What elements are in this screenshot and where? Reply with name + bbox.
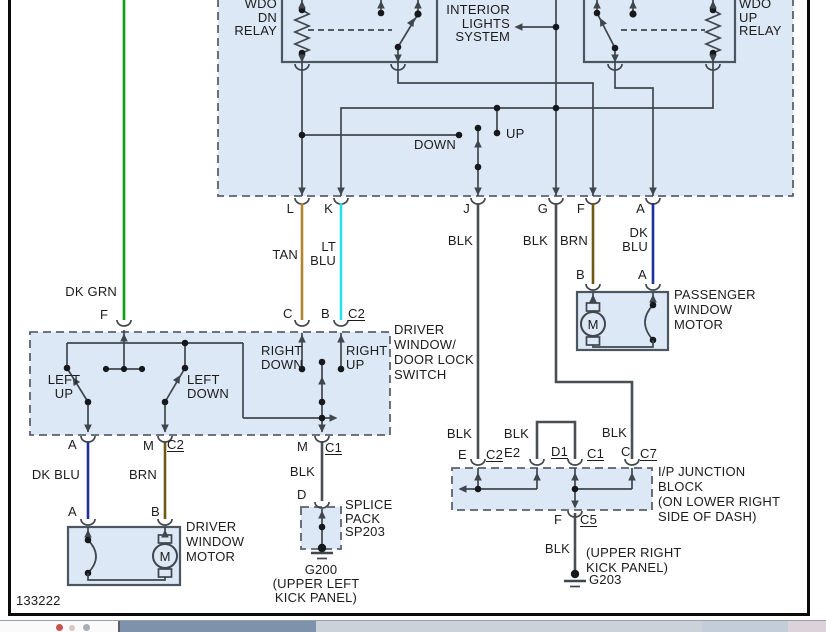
wire-blk-switch-label: BLK — [283, 465, 315, 479]
jb-conn-c7-label: C7 — [640, 447, 657, 461]
taskbar-tab-segment[interactable] — [0, 621, 118, 632]
figure-number: 133222 — [16, 594, 61, 608]
jb-blk-c-label: BLK — [595, 426, 627, 440]
pin-j-label: J — [456, 202, 470, 216]
jb-conn-c2-label: C2 — [486, 448, 503, 462]
taskbar-icon-pale[interactable] — [69, 625, 75, 631]
left-up-label: LEFT UP — [42, 373, 86, 400]
pin-g-label: G — [534, 202, 548, 216]
passenger-pin-b-label: B — [576, 268, 585, 282]
passenger-motor-letter: M — [588, 317, 599, 332]
switch-conn-c1-label: C1 — [325, 441, 342, 455]
wire-blk-j-label: BLK — [441, 234, 473, 248]
switch-pin-c-label: C — [283, 307, 293, 321]
right-up-label: RIGHT UP — [346, 344, 387, 371]
g200-label: G200 — [291, 563, 351, 577]
wdo-up-relay-label: WDO UP RELAY — [739, 0, 782, 38]
driver-motor-letter: M — [160, 549, 171, 564]
jb-blk-e2-label: BLK — [497, 427, 529, 441]
taskbar-strip — [0, 620, 826, 632]
driver-motor-pin-a-label: A — [68, 505, 77, 519]
up-bus-label: UP — [506, 127, 524, 141]
jb-conn-c5-label: C5 — [580, 513, 597, 527]
jb-conn-d1-label: D1 — [551, 445, 568, 459]
pin-k-label: K — [319, 202, 333, 216]
passenger-pin-a-label: A — [638, 268, 647, 282]
g200-location-label: (UPPER LEFT KICK PANEL) — [266, 577, 366, 604]
right-down-label: RIGHT DOWN — [261, 344, 303, 371]
g203-location-label: (UPPER RIGHT KICK PANEL) — [586, 545, 682, 575]
taskbar-segment-gray2[interactable] — [702, 621, 788, 632]
taskbar-segment-blue[interactable] — [120, 621, 316, 632]
taskbar-icon-gray[interactable] — [83, 624, 90, 631]
wire-dkblu-label: DK BLU — [612, 226, 648, 253]
taskbar-segment-pink[interactable] — [788, 621, 826, 632]
g203-label: G203 — [589, 573, 622, 587]
splice-pin-d-label: D — [297, 488, 307, 502]
jb-conn-c1-label: C1 — [587, 447, 604, 461]
jb-pin-f-label: F — [554, 513, 562, 527]
left-down-label: LEFT DOWN — [187, 373, 229, 400]
ground-g203-symbol — [564, 570, 586, 587]
driver-motor-title: DRIVER WINDOW MOTOR — [186, 519, 244, 564]
wire-brn-label: BRN — [556, 234, 588, 248]
driver-switch-title: DRIVER WINDOW/ DOOR LOCK SWITCH — [394, 322, 474, 382]
jb-pin-c-label: C — [621, 445, 631, 459]
jb-blk-e-label: BLK — [440, 427, 472, 441]
wiring-diagram-page: M M WDO DN RELAY INTERIOR LIGHTS SYSTEM … — [0, 0, 826, 632]
wire-brn-motor-label: BRN — [125, 468, 157, 482]
wire-dkblu-motor-label: DK BLU — [20, 468, 80, 482]
pin-a-label: A — [631, 202, 645, 216]
jb-pin-e2-label: E2 — [504, 446, 520, 460]
pin-f-label: F — [571, 202, 585, 216]
jb-pin-e-label: E — [458, 448, 467, 462]
switch-pin-f-label: F — [100, 308, 108, 322]
switch-pin-m2-label: M — [297, 440, 308, 454]
driver-motor-pin-b-label: B — [151, 505, 160, 519]
interior-lights-system-label: INTERIOR LIGHTS SYSTEM — [428, 3, 510, 44]
pin-l-label: L — [280, 202, 294, 216]
taskbar-segment-gray[interactable] — [316, 621, 702, 632]
wire-dkgrn-label: DK GRN — [57, 285, 117, 299]
switch-pin-m1-label: M — [143, 439, 154, 453]
switch-conn-c2-bottom-label: C2 — [167, 438, 184, 452]
splice-pack-label: SPLICE PACK SP203 — [345, 498, 392, 539]
switch-pin-a-label: A — [68, 438, 77, 452]
wire-blk-f-label: BLK — [538, 542, 570, 556]
wire-tan-label: TAN — [266, 248, 298, 262]
down-bus-label: DOWN — [404, 138, 456, 152]
switch-pin-b-label: B — [321, 307, 330, 321]
wire-blk-g-label: BLK — [516, 234, 548, 248]
switch-conn-c2-top-label: C2 — [348, 307, 365, 321]
taskbar-icon-red[interactable] — [56, 624, 63, 631]
wdo-dn-relay-label: WDO DN RELAY — [213, 0, 277, 38]
wire-ltblu-label: LT BLU — [300, 240, 336, 267]
ground-g200-symbol — [311, 553, 333, 559]
junction-block-title: I/P JUNCTION BLOCK (ON LOWER RIGHT SIDE … — [658, 464, 780, 524]
passenger-motor-title: PASSENGER WINDOW MOTOR — [674, 287, 756, 332]
